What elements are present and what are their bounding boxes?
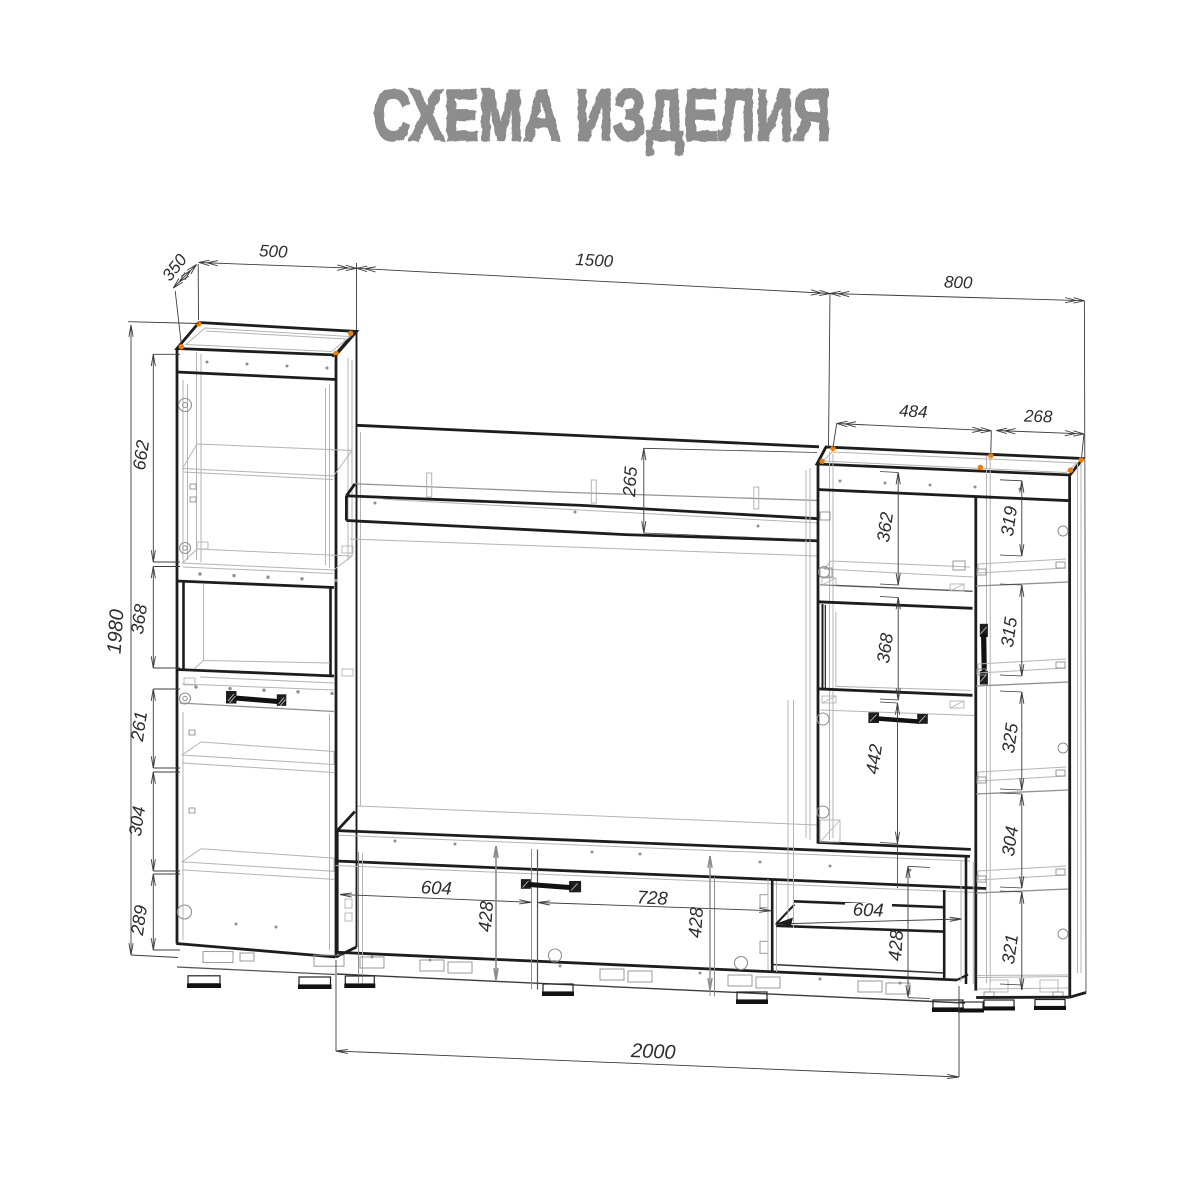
- svg-text:428: 428: [884, 929, 907, 962]
- svg-text:728: 728: [636, 886, 669, 909]
- svg-text:428: 428: [474, 900, 497, 933]
- svg-text:604: 604: [852, 898, 884, 920]
- svg-text:368: 368: [873, 632, 897, 665]
- svg-text:484: 484: [899, 401, 928, 421]
- svg-text:325: 325: [998, 721, 1022, 755]
- svg-text:315: 315: [997, 615, 1021, 649]
- svg-text:304: 304: [998, 825, 1022, 858]
- svg-text:442: 442: [862, 743, 886, 776]
- svg-text:428: 428: [684, 906, 707, 939]
- svg-text:268: 268: [1023, 406, 1054, 426]
- svg-text:2000: 2000: [630, 1040, 676, 1064]
- svg-text:500: 500: [259, 241, 289, 261]
- svg-text:662: 662: [129, 439, 153, 472]
- svg-text:362: 362: [873, 511, 897, 544]
- svg-text:304: 304: [125, 805, 149, 838]
- svg-text:1980: 1980: [103, 609, 128, 655]
- svg-text:319: 319: [997, 505, 1021, 538]
- svg-text:321: 321: [998, 933, 1022, 966]
- svg-text:СХЕМА ИЗДЕЛИЯ: СХЕМА ИЗДЕЛИЯ: [373, 76, 831, 156]
- svg-text:800: 800: [944, 273, 974, 293]
- svg-text:368: 368: [127, 603, 151, 636]
- svg-text:261: 261: [127, 710, 151, 744]
- svg-text:289: 289: [127, 904, 151, 938]
- svg-text:265: 265: [619, 465, 641, 498]
- svg-text:1500: 1500: [575, 250, 614, 271]
- svg-text:604: 604: [420, 876, 452, 899]
